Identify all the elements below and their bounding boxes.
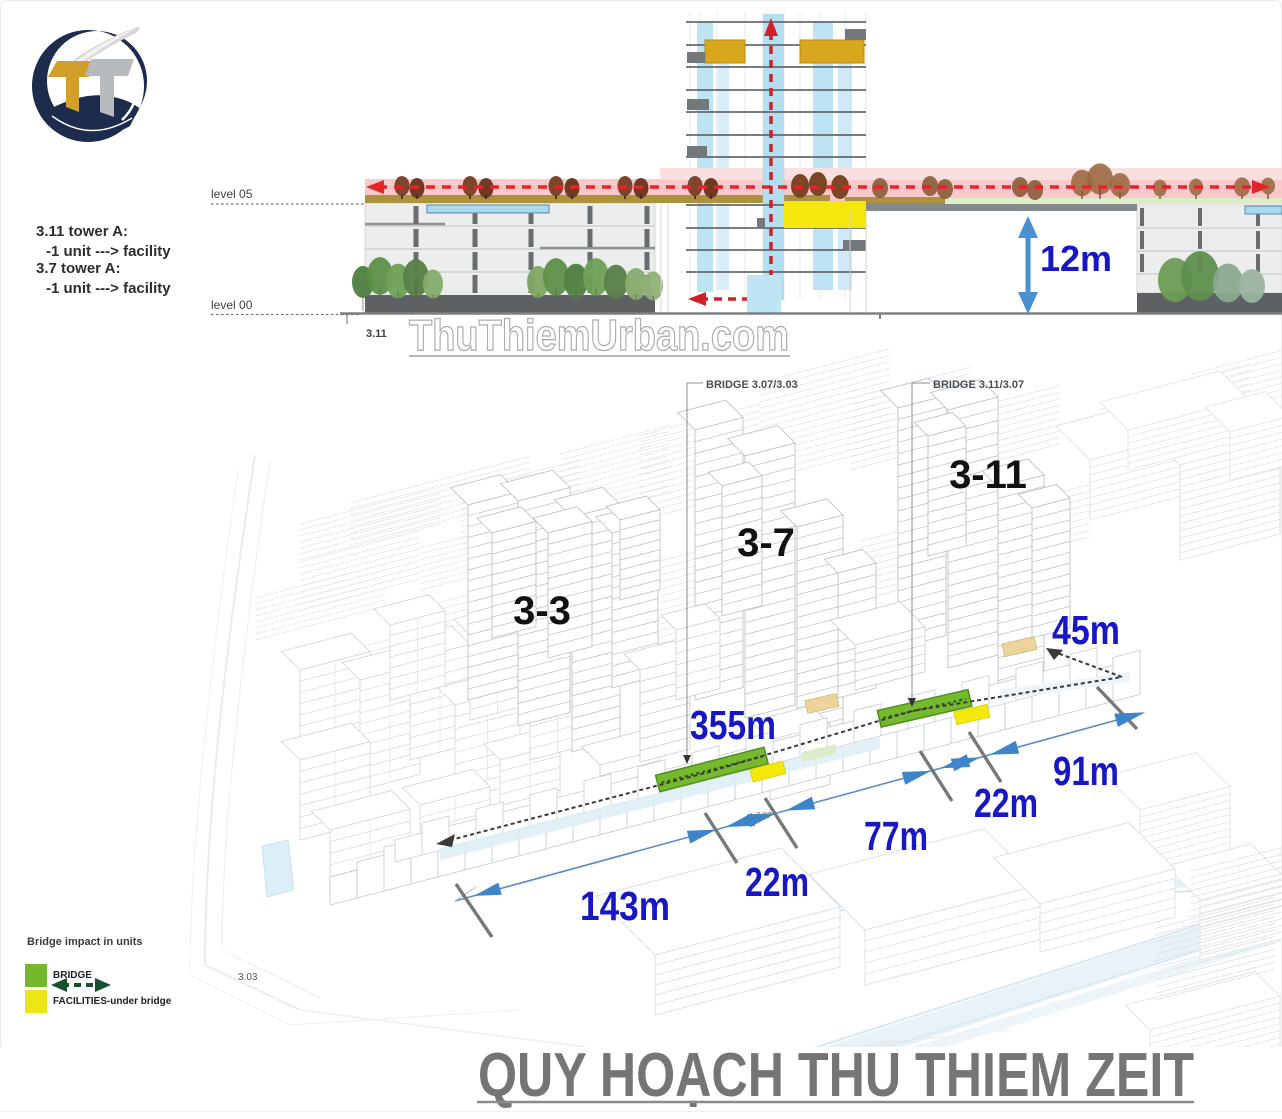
svg-text:Bridge impact in units: Bridge impact in units [27,936,143,948]
svg-text:45m: 45m [1052,607,1120,653]
svg-text:3.07: 3.07 [756,811,772,820]
svg-text:3-3: 3-3 [513,589,571,633]
svg-text:12m: 12m [1040,238,1112,279]
svg-text:355m: 355m [690,702,776,748]
svg-text:3-11: 3-11 [949,453,1027,497]
svg-text:3.11 tower A:: 3.11 tower A: [36,223,128,240]
svg-text:22m: 22m [974,780,1038,826]
svg-text:BRIDGE 3.07/3.03: BRIDGE 3.07/3.03 [706,379,798,391]
svg-text:77m: 77m [864,813,928,859]
svg-text:3.11: 3.11 [366,328,387,340]
svg-text:143m: 143m [580,883,670,929]
svg-text:-1 unit ---> facility: -1 unit ---> facility [46,243,171,260]
svg-text:BRIDGE 3.11/3.07: BRIDGE 3.11/3.07 [933,379,1024,391]
svg-text:3-7: 3-7 [737,521,795,565]
svg-text:ThuThiemUrban.com: ThuThiemUrban.com [409,311,789,360]
svg-text:BRIDGE: BRIDGE [53,970,92,981]
svg-text:3.03: 3.03 [238,972,258,983]
svg-text:FACILITIES-under bridge: FACILITIES-under bridge [53,996,172,1007]
svg-text:3.7 tower A:: 3.7 tower A: [36,260,120,277]
svg-text:level 05: level 05 [211,187,253,201]
svg-text:22m: 22m [745,859,809,905]
svg-text:level 00: level 00 [211,298,253,312]
svg-text:91m: 91m [1053,748,1119,794]
svg-text:-1 unit ---> facility: -1 unit ---> facility [46,280,171,297]
svg-text:QUY HOẠCH THU THIEM ZEIT: QUY HOẠCH THU THIEM ZEIT [478,1041,1194,1110]
